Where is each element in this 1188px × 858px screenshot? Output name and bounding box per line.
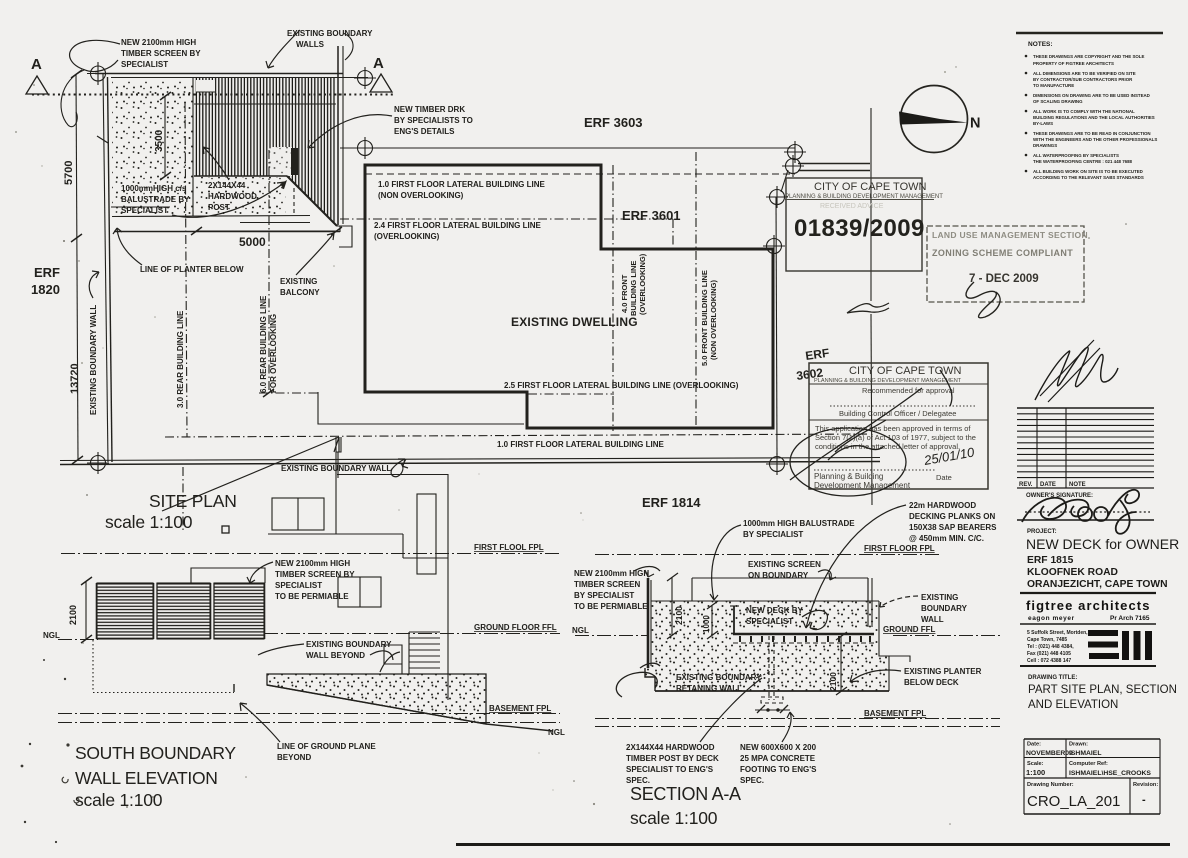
svg-text:DATE: DATE [1040,482,1056,488]
svg-text:2100: 2100 [828,672,838,691]
svg-text:(NON OVERLOOKING): (NON OVERLOOKING) [709,279,718,360]
svg-text:(OVERLOOKING): (OVERLOOKING) [374,232,440,241]
svg-text:BALCONY: BALCONY [280,288,320,297]
svg-text:FOR OVERLOOKING: FOR OVERLOOKING [269,314,278,393]
svg-text:5000: 5000 [239,235,266,249]
svg-text:ENG'S DETAILS: ENG'S DETAILS [394,127,455,136]
svg-text:eagon meyer: eagon meyer [1028,615,1075,622]
svg-text:LAND USE MANAGEMENT SECTION: LAND USE MANAGEMENT SECTION [932,230,1088,240]
svg-text:ALL BUILDING WORK ON SITE IS T: ALL BUILDING WORK ON SITE IS TO BE EXECU… [1033,169,1143,174]
svg-text:CITY OF CAPE TOWN: CITY OF CAPE TOWN [814,181,927,193]
svg-text:LINE OF GROUND PLANE: LINE OF GROUND PLANE [277,742,376,751]
svg-text:TIMBER POST BY DECK: TIMBER POST BY DECK [626,754,719,763]
svg-text:BUILDING LINE: BUILDING LINE [629,261,638,316]
svg-text:SITE PLAN: SITE PLAN [149,491,237,511]
svg-text:ALL WORK IS TO COMPLY WITH THE: ALL WORK IS TO COMPLY WITH THE NATIONAL [1033,109,1135,114]
svg-text:BALUSTRADE BY: BALUSTRADE BY [121,195,190,204]
svg-text:BY SPECIALISTS TO: BY SPECIALISTS TO [394,116,473,125]
svg-text:AND ELEVATION: AND ELEVATION [1028,699,1118,711]
svg-text:BY-LAWS: BY-LAWS [1033,121,1053,126]
svg-text:Development Management: Development Management [814,481,911,490]
svg-text:2X144X44: 2X144X44 [208,181,246,190]
svg-text:NEW 2100mm HIGH: NEW 2100mm HIGH [275,559,350,568]
svg-text:1.0 FIRST FLOOR LATERAL BUILDI: 1.0 FIRST FLOOR LATERAL BUILDING LINE [497,440,664,449]
svg-text:2.4 FIRST FLOOR LATERAL BUILDI: 2.4 FIRST FLOOR LATERAL BUILDING LINE [374,221,541,230]
svg-text:Recommended for approval: Recommended for approval [862,386,955,395]
svg-text:Pr Arch 7165: Pr Arch 7165 [1110,615,1150,622]
svg-text:ALL WATERPROOFING BY SPECIALIS: ALL WATERPROOFING BY SPECIALISTS [1033,153,1119,158]
svg-text:5700: 5700 [63,161,75,185]
svg-text:BASEMENT FPL: BASEMENT FPL [489,704,551,713]
svg-text:SPEC.: SPEC. [740,776,764,785]
svg-text:Date: Date [936,473,952,482]
svg-text:A: A [31,56,42,73]
svg-text:OF SCALING DRAWING: OF SCALING DRAWING [1033,99,1083,104]
svg-text:Building Control Officer / Del: Building Control Officer / Delegatee [839,409,956,418]
svg-text:LINE OF PLANTER BELOW: LINE OF PLANTER BELOW [140,265,244,274]
svg-text:Cape Town, 7485: Cape Town, 7485 [1027,637,1067,643]
svg-text:CITY OF CAPE TOWN: CITY OF CAPE TOWN [849,365,962,377]
svg-text:13720: 13720 [69,363,81,394]
svg-text:PLANNING & BUILDING DEVELOPMEN: PLANNING & BUILDING DEVELOPMENT MANAGEME… [814,378,962,384]
svg-text:REV.: REV. [1019,482,1033,488]
svg-text:GROUND FFL: GROUND FFL [883,625,936,634]
svg-text:Planning & Building: Planning & Building [814,472,883,481]
svg-text:6.0 REAR BUILDING LINE: 6.0 REAR BUILDING LINE [259,295,268,393]
svg-text:FIRST FLOOL FPL: FIRST FLOOL FPL [474,543,544,552]
svg-text:ERF: ERF [34,265,60,280]
svg-text:FIRST FLOOR FPL: FIRST FLOOR FPL [864,544,935,553]
svg-text:ERF 1814: ERF 1814 [642,495,701,510]
svg-text:SPECIALIST: SPECIALIST [121,60,168,69]
svg-text:2.5 FIRST FLOOR LATERAL BUILDI: 2.5 FIRST FLOOR LATERAL BUILDING LINE (O… [504,381,739,390]
svg-text:1820: 1820 [31,282,60,297]
svg-text:N: N [970,116,980,132]
svg-text:GROUND FLOOR FFL: GROUND FLOOR FFL [474,623,557,632]
svg-text:TO BE PERMIABLE: TO BE PERMIABLE [574,602,648,611]
svg-text:1:100: 1:100 [1026,768,1045,777]
svg-text:BY SPECIALIST: BY SPECIALIST [574,591,634,600]
svg-text:BEYOND: BEYOND [277,753,311,762]
svg-text:HARDWOOD: HARDWOOD [208,192,257,201]
svg-text:Drawing Number:: Drawing Number: [1027,782,1074,788]
svg-text:NOTES:: NOTES: [1028,41,1053,48]
svg-text:PROPERTY OF FIGTREE ARCHITECTS: PROPERTY OF FIGTREE ARCHITECTS [1033,61,1114,66]
svg-text:EXISTING BOUNDARY WALL: EXISTING BOUNDARY WALL [89,305,98,415]
svg-text:DECKING PLANKS ON: DECKING PLANKS ON [909,512,995,521]
svg-text:ZONING SCHEME COMPLIANT: ZONING SCHEME COMPLIANT [932,248,1073,258]
svg-text:-: - [1142,794,1146,806]
svg-text:NEW 2100mm HIGH: NEW 2100mm HIGH [121,38,196,47]
svg-text:NEW 600X600 X 200: NEW 600X600 X 200 [740,743,817,752]
svg-text:2X144X44 HARDWOOD: 2X144X44 HARDWOOD [626,743,715,752]
svg-text:NEW DECK for OWNER: NEW DECK for OWNER [1026,536,1179,552]
svg-text:3.0 REAR BUILDING LINE: 3.0 REAR BUILDING LINE [176,310,185,408]
svg-text:KLOOFNEK ROAD: KLOOFNEK ROAD [1027,567,1118,578]
svg-text:SPECIALIST: SPECIALIST [746,617,793,626]
svg-text:WITH THE ENGINEERS AND THE OTH: WITH THE ENGINEERS AND THE OTHER PROFESS… [1033,137,1157,142]
svg-text:SECTION A-A: SECTION A-A [630,784,741,804]
svg-text:Cell : 072 4388 147: Cell : 072 4388 147 [1027,658,1071,664]
svg-text:DRAWINGS: DRAWINGS [1033,143,1057,148]
svg-text:THESE DRAWINGS ARE COPYRIGHT A: THESE DRAWINGS ARE COPYRIGHT AND THE SOL… [1033,54,1144,59]
svg-text:ON BOUNDARY: ON BOUNDARY [748,571,809,580]
svg-text:THESE DRAWINGS ARE TO BE READ: THESE DRAWINGS ARE TO BE READ IN CONJUNC… [1033,131,1151,136]
svg-text:scale 1:100: scale 1:100 [630,808,718,828]
svg-text:A: A [373,55,384,72]
svg-text:ERF 3603: ERF 3603 [584,115,643,130]
svg-text:@ 450mm MIN. C/C.: @ 450mm MIN. C/C. [909,534,984,543]
svg-text:NGL: NGL [43,631,60,640]
svg-text:NEW TIMBER DRK: NEW TIMBER DRK [394,105,465,114]
svg-text:POST: POST [208,203,230,212]
svg-text:NEW 2100mm HIGH: NEW 2100mm HIGH [574,569,649,578]
svg-text:(NON OVERLOOKING): (NON OVERLOOKING) [378,191,464,200]
svg-text:PROJECT:: PROJECT: [1027,529,1057,535]
svg-text:EXISTING BOUNDARY: EXISTING BOUNDARY [306,640,392,649]
svg-text:Revision:: Revision: [1133,782,1158,788]
svg-text:BASEMENT FPL: BASEMENT FPL [864,709,926,718]
svg-text:150X38 SAP BEARERS: 150X38 SAP BEARERS [909,523,997,532]
svg-text:ERF 3601: ERF 3601 [622,208,681,223]
svg-text:BOUNDARY: BOUNDARY [921,604,968,613]
svg-text:EXISTING: EXISTING [921,593,958,602]
svg-text:ORANJEZICHT, CAPE TOWN: ORANJEZICHT, CAPE TOWN [1027,579,1168,590]
svg-text:25 MPA CONCRETE: 25 MPA CONCRETE [740,754,816,763]
svg-text:EXISTING DWELLING: EXISTING DWELLING [511,315,638,329]
svg-text:Scale:: Scale: [1027,761,1044,767]
svg-text:PART SITE PLAN, SECTION: PART SITE PLAN, SECTION [1028,684,1177,696]
svg-text:EXISTING: EXISTING [280,277,317,286]
svg-text:(OVERLOOKING): (OVERLOOKING) [638,253,647,315]
svg-text:Computer Ref:: Computer Ref: [1069,761,1108,767]
svg-text:NOVEMBER09: NOVEMBER09 [1026,750,1073,757]
svg-text:EXISTING SCREEN: EXISTING SCREEN [748,560,821,569]
svg-text:figtree architects: figtree architects [1026,598,1151,613]
svg-text:RETANING WALL: RETANING WALL [676,684,742,693]
svg-text:ACCORDING TO THE RELEVANT SABS: ACCORDING TO THE RELEVANT SABS STANDARDS [1033,175,1144,180]
svg-text:SPECIALIST: SPECIALIST [275,581,322,590]
svg-text:1000mm HIGH BALUSTRADE: 1000mm HIGH BALUSTRADE [743,519,855,528]
svg-text:SPECIALIST: SPECIALIST [121,206,168,215]
svg-text:SPECIALIST TO ENG'S: SPECIALIST TO ENG'S [626,765,714,774]
svg-text:ERF 1815: ERF 1815 [1027,555,1074,566]
svg-text:BY SPECIALIST: BY SPECIALIST [743,530,803,539]
svg-text:EXISTING PLANTER: EXISTING PLANTER [904,667,982,676]
svg-text:NOTE: NOTE [1069,482,1086,488]
svg-text:WALL ELEVATION: WALL ELEVATION [75,768,218,788]
svg-text:01839/2009: 01839/2009 [794,215,925,242]
svg-text:RECEIVED ADVICE: RECEIVED ADVICE [820,203,884,210]
svg-text:BELOW DECK: BELOW DECK [904,678,959,687]
svg-text:FOOTING TO ENG'S: FOOTING TO ENG'S [740,765,817,774]
svg-text:CRO_LA_201: CRO_LA_201 [1027,793,1120,810]
svg-text:EXISTING BOUNDARY: EXISTING BOUNDARY [676,673,762,682]
svg-text:3500: 3500 [154,129,165,152]
svg-text:BY CONTRACTOR/SUB CONTRACTORS: BY CONTRACTOR/SUB CONTRACTORS PRIOR [1033,77,1133,82]
svg-text:THE WATERPROOFING CENTRE : 021: THE WATERPROOFING CENTRE : 021 448 7688 [1033,159,1133,164]
svg-text:TO BE PERMIABLE: TO BE PERMIABLE [275,592,349,601]
svg-text:Drawn:: Drawn: [1069,742,1088,748]
svg-text:WALL: WALL [921,615,944,624]
svg-text:22m HARDWOOD: 22m HARDWOOD [909,501,976,510]
svg-text:WALL BEYOND: WALL BEYOND [306,651,365,660]
svg-text:1000: 1000 [702,615,711,633]
svg-text:NGL: NGL [548,728,565,737]
svg-text:scale 1:100: scale 1:100 [105,512,193,532]
svg-text:2100: 2100 [68,605,78,625]
svg-text:NEW DECK BY: NEW DECK BY [746,606,804,615]
svg-text:scale 1:100: scale 1:100 [75,790,163,810]
svg-text:DIMENSIONS ON DRAWING ARE TO B: DIMENSIONS ON DRAWING ARE TO BE USED INS… [1033,93,1150,98]
svg-text:5.0 FRONT BUILDING LINE: 5.0 FRONT BUILDING LINE [700,270,709,366]
svg-text:Tel : (021) 448 4384,: Tel : (021) 448 4384, [1027,644,1074,650]
svg-text:Section 7(1)(a) of Act 103 of: Section 7(1)(a) of Act 103 of 1977, subj… [815,433,976,442]
svg-text:TIMBER SCREEN BY: TIMBER SCREEN BY [121,49,201,58]
svg-text:2100: 2100 [674,606,684,625]
svg-text:TIMBER SCREEN: TIMBER SCREEN [574,580,640,589]
svg-text:BUILDING REGULATIONS AND THE L: BUILDING REGULATIONS AND THE LOCAL AUTHO… [1033,115,1155,120]
svg-text:WALLS: WALLS [296,40,325,49]
svg-text:NGL: NGL [572,626,589,635]
svg-text:1.0 FIRST FLOOR LATERAL BUILDI: 1.0 FIRST FLOOR LATERAL BUILDING LINE [378,180,545,189]
svg-text:1000mmHIGH c/s: 1000mmHIGH c/s [121,184,187,193]
svg-text:ISHMAIEL: ISHMAIEL [1069,750,1101,757]
svg-text:Fax (021) 448 4105: Fax (021) 448 4105 [1027,651,1071,657]
svg-text:5 Suffolk Street, Mortden,: 5 Suffolk Street, Mortden, [1027,630,1088,636]
svg-text:ISHMAIEL\HSE_CROOKS: ISHMAIEL\HSE_CROOKS [1069,770,1151,777]
svg-text:7 - DEC 2009: 7 - DEC 2009 [969,273,1039,285]
svg-text:TIMBER SCREEN BY: TIMBER SCREEN BY [275,570,355,579]
svg-text:TO MANUFACTURE: TO MANUFACTURE [1033,83,1074,88]
svg-text:DRAWING TITLE:: DRAWING TITLE: [1028,675,1077,681]
svg-text:ALL DIMENSIONS ARE TO BE VERIF: ALL DIMENSIONS ARE TO BE VERIFIED ON SIT… [1033,71,1136,76]
svg-text:Date:: Date: [1027,742,1041,748]
svg-text:SOUTH BOUNDARY: SOUTH BOUNDARY [75,743,236,763]
svg-text:4.0 FRONT: 4.0 FRONT [620,274,629,313]
